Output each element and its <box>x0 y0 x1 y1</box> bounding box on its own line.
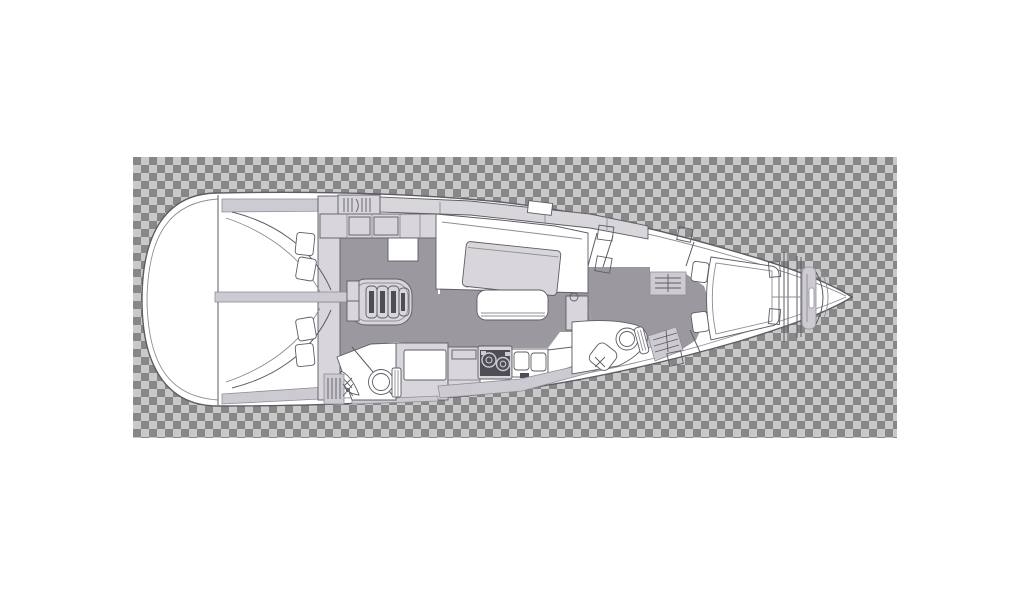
aft-locker-column-top <box>318 196 340 293</box>
hanging-locker-midship <box>650 272 686 295</box>
galley-counter <box>448 347 480 387</box>
pillow <box>295 232 315 256</box>
tread-slot <box>391 291 396 313</box>
salon-bench <box>477 290 548 320</box>
salon-table <box>462 241 561 296</box>
tread-slot <box>369 291 374 313</box>
stove-knob <box>505 352 510 356</box>
pillow <box>691 311 710 333</box>
hanging-locker-aft-stbd <box>324 374 344 404</box>
steps-side <box>347 281 359 301</box>
aft-cabin-divider <box>215 292 350 302</box>
fridge-lid <box>404 350 446 380</box>
stove-knob <box>481 351 486 355</box>
pillow <box>691 261 710 283</box>
toilet-tank <box>392 368 401 397</box>
steps-side <box>347 301 359 321</box>
pillow <box>295 343 315 367</box>
chart-table <box>388 238 418 261</box>
pillow <box>295 257 317 282</box>
boat-plan-svg <box>0 0 1024 600</box>
companionway-steps <box>347 279 412 325</box>
anchor-locker-hatch <box>809 288 814 308</box>
pillow <box>295 317 317 342</box>
tread-slot <box>401 293 405 311</box>
floor-plan-image <box>0 0 1024 600</box>
deck-hatch <box>527 201 552 216</box>
tread-slot <box>380 291 385 313</box>
